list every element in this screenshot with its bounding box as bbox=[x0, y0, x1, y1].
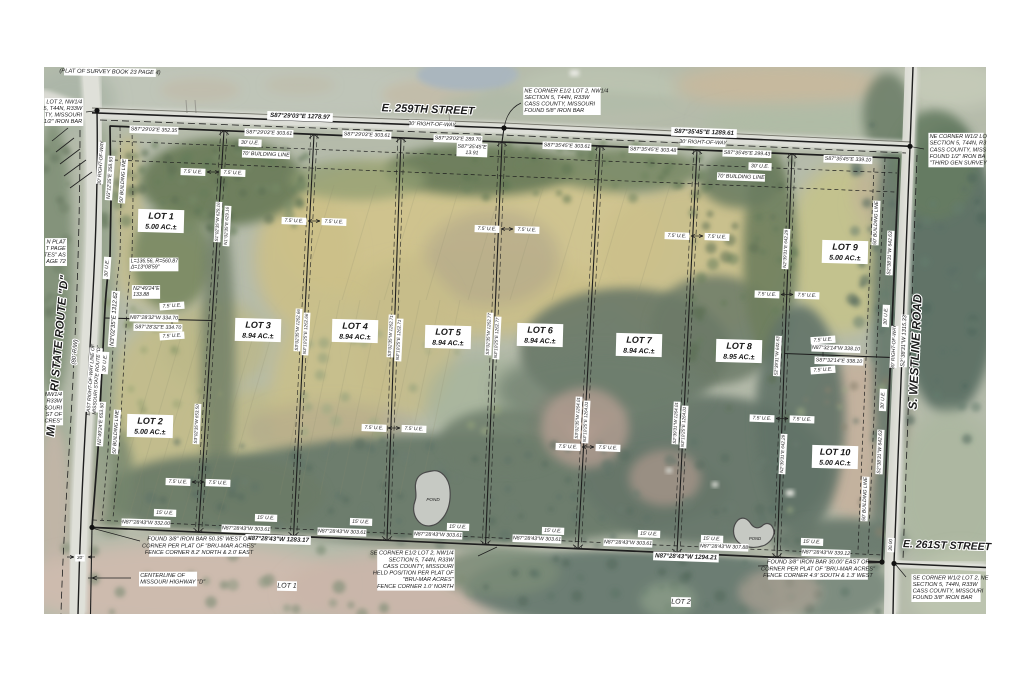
svg-text:5.00 AC.±: 5.00 AC.± bbox=[829, 255, 861, 263]
svg-text:7.5' U.E.: 7.5' U.E. bbox=[797, 292, 816, 299]
svg-text:7.5' U.E.: 7.5' U.E. bbox=[757, 291, 776, 298]
svg-text:8.94 AC.±: 8.94 AC.± bbox=[242, 333, 274, 341]
svg-text:CORNER PER PLAT OF "BRU-MAR AC: CORNER PER PLAT OF "BRU-MAR ACRES" bbox=[142, 543, 257, 549]
svg-text:CASS COUNTY, MISSOURI: CASS COUNTY, MISSOURI bbox=[383, 564, 454, 570]
svg-text:133.88: 133.88 bbox=[133, 292, 149, 298]
svg-text:7.5' U.E.: 7.5' U.E. bbox=[284, 218, 303, 225]
svg-text:NE CORNER E1/2 LOT 2, NW1/4: NE CORNER E1/2 LOT 2, NW1/4 bbox=[524, 88, 608, 94]
svg-text:FOUND 3/8" IRON BAR 30.00' EAS: FOUND 3/8" IRON BAR 30.00' EAST OF bbox=[767, 560, 869, 566]
svg-text:30' U.E.: 30' U.E. bbox=[103, 259, 110, 277]
svg-text:7.5' U.E.: 7.5' U.E. bbox=[324, 219, 343, 226]
svg-text:POND: POND bbox=[426, 497, 440, 502]
svg-text:7.5' U.E.: 7.5' U.E. bbox=[183, 169, 202, 176]
svg-text:FOUND 1/2" IRON BA: FOUND 1/2" IRON BA bbox=[930, 154, 986, 160]
svg-text:7.5' U.E.: 7.5' U.E. bbox=[752, 415, 771, 422]
svg-text:LOT 3: LOT 3 bbox=[245, 320, 271, 331]
svg-text:FOUND 5/8" IRON BAR: FOUND 5/8" IRON BAR bbox=[524, 108, 584, 114]
svg-text:15' U.E.: 15' U.E. bbox=[352, 519, 370, 526]
svg-text:"BRU-MAR ACRES": "BRU-MAR ACRES" bbox=[403, 577, 455, 583]
svg-text:30' U.E.: 30' U.E. bbox=[880, 391, 887, 409]
svg-text:30' U.E.: 30' U.E. bbox=[883, 307, 890, 325]
svg-text:7.5' U.E.: 7.5' U.E. bbox=[598, 445, 617, 452]
svg-text:SE CORNER W1/2 LOT 2, NE: SE CORNER W1/2 LOT 2, NE bbox=[913, 575, 989, 581]
svg-text:TY, MISSOURI: TY, MISSOURI bbox=[45, 113, 83, 119]
svg-text:30' U.E.: 30' U.E. bbox=[751, 163, 769, 170]
svg-text:LOT 4: LOT 4 bbox=[342, 321, 368, 332]
svg-text:5.00 AC.±: 5.00 AC.± bbox=[145, 224, 177, 232]
svg-text:5, T44N, R33W: 5, T44N, R33W bbox=[44, 106, 83, 112]
svg-text:SECTION 5, T44N, R33W: SECTION 5, T44N, R33W bbox=[913, 582, 979, 588]
svg-text:SECTION 5, T44N, R33W: SECTION 5, T44N, R33W bbox=[524, 95, 590, 101]
svg-text:15' U.E.: 15' U.E. bbox=[257, 515, 275, 522]
svg-text:SOURI: SOURI bbox=[44, 405, 62, 411]
svg-text:30' U.E.: 30' U.E. bbox=[241, 140, 259, 147]
svg-text:CRES": CRES" bbox=[44, 419, 63, 425]
svg-text:R33W: R33W bbox=[46, 399, 62, 405]
svg-text:LOT 6: LOT 6 bbox=[527, 325, 554, 336]
svg-text:1/2" IRON BAR: 1/2" IRON BAR bbox=[44, 119, 82, 125]
svg-text:8.94 AC.±: 8.94 AC.± bbox=[339, 334, 371, 342]
svg-text:7.5' U.E.: 7.5' U.E. bbox=[364, 425, 383, 432]
svg-text:7.5' U.E.: 7.5' U.E. bbox=[477, 226, 496, 233]
svg-text:CASS COUNTY, MISSOURI: CASS COUNTY, MISSOURI bbox=[524, 102, 595, 108]
svg-text:5.00 AC.±: 5.00 AC.± bbox=[819, 460, 851, 468]
svg-text:SECTION 5, T44N, R3: SECTION 5, T44N, R3 bbox=[930, 141, 987, 147]
svg-text:MISSOURI HIGHWAY "D": MISSOURI HIGHWAY "D" bbox=[140, 580, 206, 586]
svg-text:NE CORNER W1/2 LO: NE CORNER W1/2 LO bbox=[930, 134, 988, 140]
svg-text:LOT 1: LOT 1 bbox=[277, 583, 297, 590]
svg-text:CASS COUNTY, MISS: CASS COUNTY, MISS bbox=[930, 147, 987, 153]
svg-text:POND: POND bbox=[749, 536, 761, 541]
svg-text:30': 30' bbox=[77, 555, 84, 561]
svg-text:8.94 AC.±: 8.94 AC.± bbox=[623, 348, 655, 356]
svg-text:15' U.E.: 15' U.E. bbox=[803, 539, 821, 546]
svg-text:7.5' U.E.: 7.5' U.E. bbox=[792, 416, 811, 423]
svg-text:7.5' U.E.: 7.5' U.E. bbox=[223, 170, 242, 177]
svg-text:LOT 9: LOT 9 bbox=[832, 242, 858, 253]
svg-text:15' U.E.: 15' U.E. bbox=[703, 536, 721, 543]
svg-text:T PAGE: T PAGE bbox=[46, 246, 66, 252]
svg-text:CASS COUNTY, MISSOURI: CASS COUNTY, MISSOURI bbox=[913, 589, 984, 595]
svg-text:30.00: 30.00 bbox=[888, 539, 895, 552]
svg-text:8.94 AC.±: 8.94 AC.± bbox=[524, 338, 556, 346]
svg-text:7.5' U.E.: 7.5' U.E. bbox=[667, 233, 686, 240]
svg-text:N87°28'32"W 334.70: N87°28'32"W 334.70 bbox=[130, 315, 178, 322]
svg-text:CENTERLINE OF: CENTERLINE OF bbox=[140, 573, 185, 579]
svg-text:Δ=13°08'59": Δ=13°08'59" bbox=[130, 265, 161, 271]
svg-text:7.5' U.E.: 7.5' U.E. bbox=[168, 479, 187, 486]
svg-text:LOT 2, NW1/4: LOT 2, NW1/4 bbox=[46, 99, 82, 105]
svg-text:8.94 AC.±: 8.94 AC.± bbox=[432, 340, 464, 348]
svg-text:S87°28'32"E 334.70: S87°28'32"E 334.70 bbox=[135, 324, 182, 331]
svg-text:15' U.E.: 15' U.E. bbox=[640, 531, 658, 538]
svg-text:L=136.56, R=560.87: L=136.56, R=560.87 bbox=[131, 259, 179, 265]
svg-text:FENCE CORNER 1.0' NORTH: FENCE CORNER 1.0' NORTH bbox=[377, 584, 454, 590]
svg-text:ST OF: ST OF bbox=[46, 412, 63, 418]
svg-text:N PLAT: N PLAT bbox=[47, 239, 67, 245]
svg-text:LOT 1: LOT 1 bbox=[148, 211, 174, 222]
svg-text:LOT 5: LOT 5 bbox=[435, 327, 462, 338]
svg-text:LOT 7: LOT 7 bbox=[626, 335, 653, 346]
svg-text:15' U.E.: 15' U.E. bbox=[544, 528, 562, 535]
svg-text:LOT 2: LOT 2 bbox=[671, 599, 691, 606]
svg-text:LOT 10: LOT 10 bbox=[820, 447, 851, 458]
svg-text:7.5' U.E.: 7.5' U.E. bbox=[707, 234, 726, 241]
svg-text:15' U.E.: 15' U.E. bbox=[156, 510, 174, 517]
svg-text:13.91: 13.91 bbox=[465, 150, 478, 156]
svg-text:7.5' U.E.: 7.5' U.E. bbox=[404, 426, 423, 433]
svg-text:CORNER PER PLAT OF "BRU-MAR AC: CORNER PER PLAT OF "BRU-MAR ACRES" bbox=[761, 566, 876, 572]
svg-text:FOUND 3/8" IRON BAR: FOUND 3/8" IRON BAR bbox=[913, 595, 973, 601]
svg-text:30' U.E.: 30' U.E. bbox=[101, 354, 108, 372]
svg-text:"THIRD GEN SURVEY: "THIRD GEN SURVEY bbox=[930, 161, 988, 167]
svg-text:AGE 72: AGE 72 bbox=[45, 259, 66, 265]
svg-text:HELD POSITION PER PLAT OF: HELD POSITION PER PLAT OF bbox=[373, 571, 454, 577]
svg-text:7.5' U.E.: 7.5' U.E. bbox=[558, 444, 577, 451]
svg-text:SE CORNER E1/2 LOT 2, NW1/4: SE CORNER E1/2 LOT 2, NW1/4 bbox=[370, 551, 454, 557]
svg-text:NW1/4: NW1/4 bbox=[45, 392, 62, 398]
svg-text:TES" AS: TES" AS bbox=[44, 253, 66, 259]
svg-text:8.95 AC.±: 8.95 AC.± bbox=[723, 354, 755, 362]
svg-text:LOT 8: LOT 8 bbox=[726, 341, 752, 352]
svg-text:FENCE CORNER 8.2' NORTH & 2.0': FENCE CORNER 8.2' NORTH & 2.0' EAST bbox=[145, 550, 254, 556]
svg-text:FOUND 3/8" IRON BAR 50.35' WES: FOUND 3/8" IRON BAR 50.35' WEST OF bbox=[147, 537, 251, 543]
svg-text:15' U.E.: 15' U.E. bbox=[449, 524, 467, 531]
svg-text:FENCE CORNER 4.9' SOUTH & 1.3': FENCE CORNER 4.9' SOUTH & 1.3' WEST bbox=[763, 573, 873, 579]
svg-text:N2°49'24"E: N2°49'24"E bbox=[133, 286, 160, 292]
svg-text:7.5' U.E.: 7.5' U.E. bbox=[517, 227, 536, 234]
svg-text:5.00 AC.±: 5.00 AC.± bbox=[134, 429, 166, 437]
svg-text:LOT 2: LOT 2 bbox=[137, 416, 163, 427]
svg-text:7.5' U.E.: 7.5' U.E. bbox=[208, 480, 227, 487]
svg-text:SECTION 5, T44N, R33W: SECTION 5, T44N, R33W bbox=[389, 557, 455, 563]
